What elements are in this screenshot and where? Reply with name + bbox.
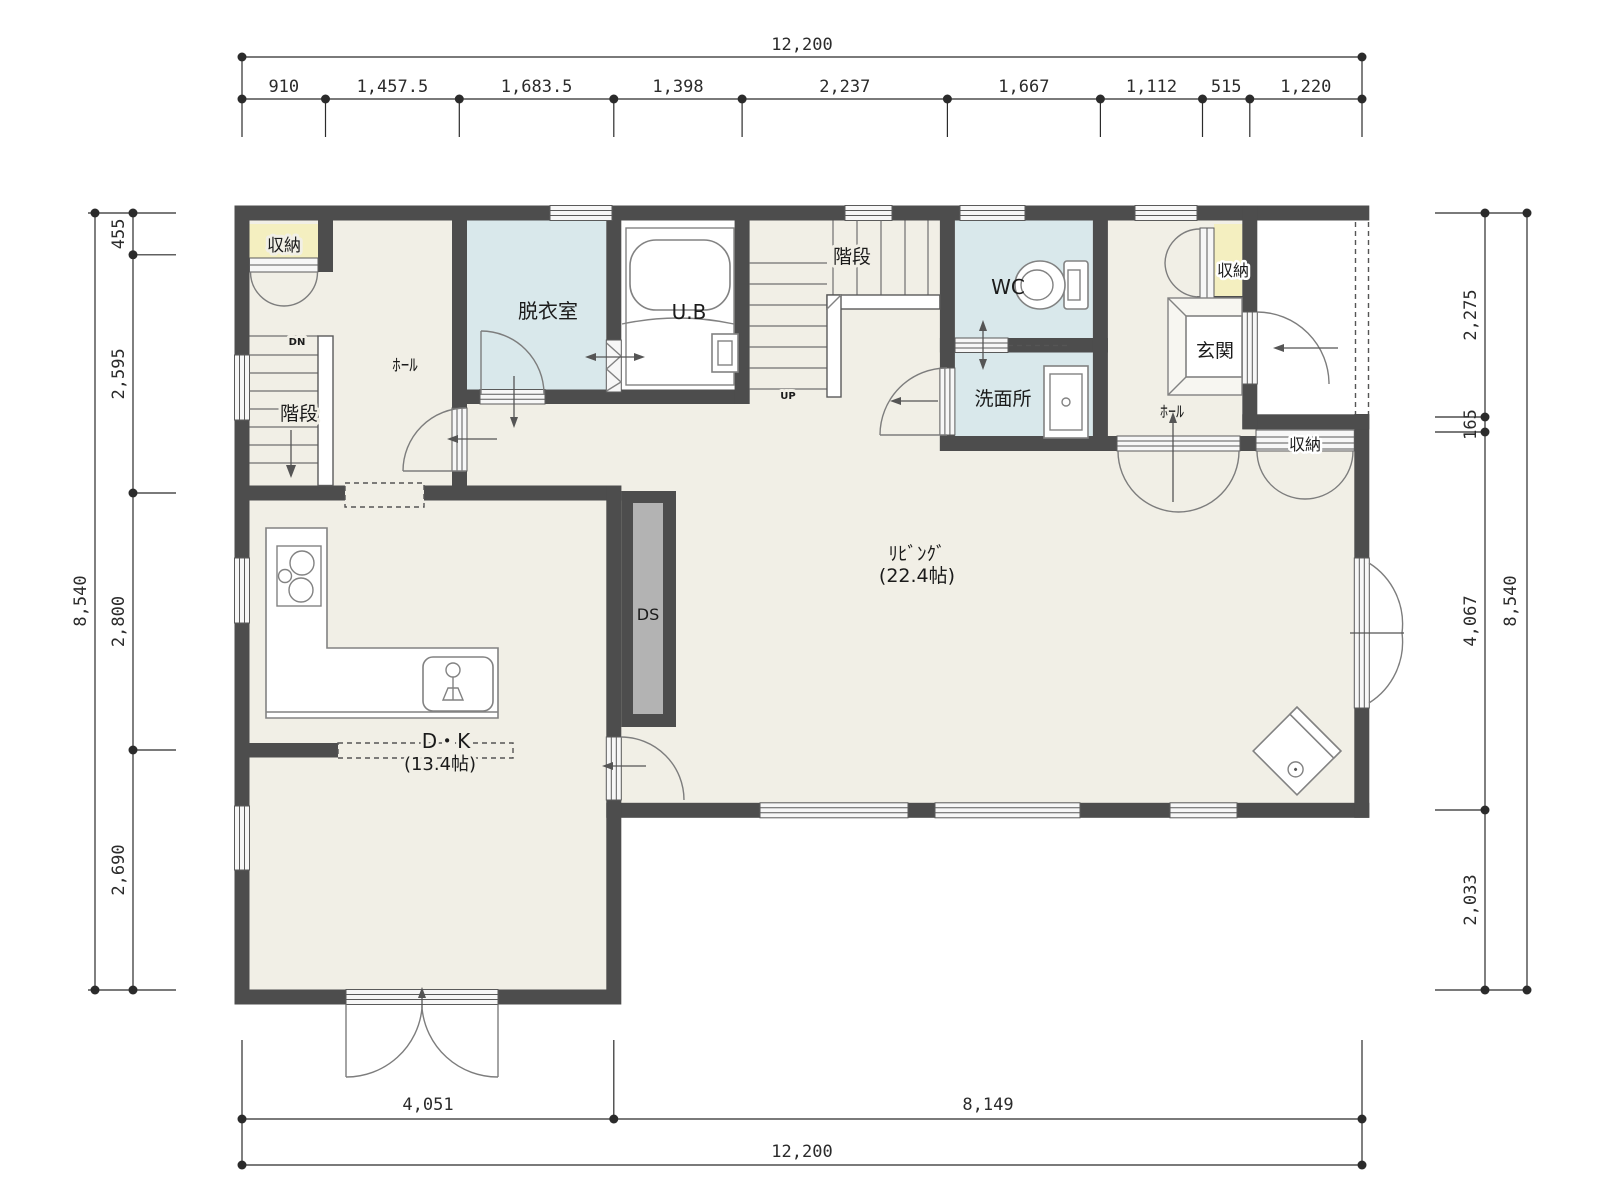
dimension-right: 8,540 2,275 165 4,067 2,033 <box>1435 209 1532 995</box>
dim-left-seg: 2,690 <box>109 844 129 895</box>
door-french-living <box>1350 558 1404 708</box>
window-left-stairs <box>235 355 250 420</box>
label-dressing: 脱衣室 <box>518 299 578 323</box>
dim-top-seg: 1,457.5 <box>357 77 429 97</box>
dim-top-seg: 1,398 <box>652 77 703 97</box>
label-dk: D・K <box>422 729 471 753</box>
window-south-1 <box>760 803 908 818</box>
toilet <box>1015 261 1088 309</box>
dim-top-seg: 515 <box>1211 77 1242 97</box>
label-hall-left: ﾎｰﾙ <box>392 356 418 376</box>
wall-porch-south <box>1242 414 1369 429</box>
label-living-size: (22.4帖) <box>879 565 955 587</box>
label-closet-top-left: 収納 <box>267 236 301 256</box>
dim-top-seg: 1,220 <box>1280 77 1331 97</box>
dim-top-seg: 1,683.5 <box>501 77 573 97</box>
entrance-porch <box>1242 206 1369 430</box>
door-unit-bath-folding <box>606 340 621 392</box>
wall-stub-closet-living <box>1240 436 1256 451</box>
dimension-bottom: 4,051 8,149 12,200 <box>238 1040 1367 1170</box>
dim-left-seg: 2,595 <box>109 348 129 399</box>
label-wc: WC <box>991 275 1025 299</box>
stairs-center-rail-v <box>827 295 841 397</box>
label-washroom: 洗面所 <box>974 388 1031 410</box>
floor-plan-page: 収納 ﾎｰﾙ 階段 DN 脱衣室 U.B 階段 UP WC 洗面所 収納 玄関 … <box>0 0 1600 1200</box>
window-top-wc <box>960 206 1025 221</box>
label-ds: DS <box>637 605 659 624</box>
dimension-top: 12,200 910 1,457.5 1,683.5 1,398 2,237 1… <box>238 35 1367 137</box>
dim-left-total: 8,540 <box>71 575 91 626</box>
label-entrance: 玄関 <box>1196 340 1234 362</box>
vanity-sink <box>1044 366 1088 438</box>
label-unit-bath: U.B <box>672 300 707 324</box>
window-left-kitchen <box>235 558 250 623</box>
dim-bottom-seg: 4,051 <box>402 1095 453 1115</box>
dim-left-seg: 2,800 <box>109 596 129 647</box>
dim-top-seg: 1,667 <box>998 77 1049 97</box>
dim-right-seg: 165 <box>1461 409 1481 440</box>
wall-hall-dk <box>235 486 622 501</box>
window-south-3 <box>1170 803 1237 818</box>
dim-top-seg: 2,237 <box>819 77 870 97</box>
window-top-stairs <box>845 206 892 221</box>
wall-washroom-east <box>1093 221 1108 452</box>
wall-hall-living <box>940 436 1117 451</box>
dim-bottom-total: 12,200 <box>771 1142 832 1162</box>
label-living: ﾘﾋﾞﾝｸﾞ <box>888 543 945 565</box>
dim-top-total: 12,200 <box>771 35 832 55</box>
stairs-center-rail-h <box>827 295 940 309</box>
label-stairs-left-dn: DN <box>289 337 306 348</box>
dim-top-seg: 1,112 <box>1126 77 1177 97</box>
label-dk-size: (13.4帖) <box>404 754 476 775</box>
stairs-left-rail <box>318 336 333 486</box>
window-top-dressing <box>550 206 612 221</box>
window-south-2 <box>935 803 1080 818</box>
dim-right-seg: 2,033 <box>1461 874 1481 925</box>
label-stairs-center-up: UP <box>780 391 795 402</box>
label-closet-entry: 収納 <box>1217 261 1249 280</box>
floor-plan-drawing: 収納 ﾎｰﾙ 階段 DN 脱衣室 U.B 階段 UP WC 洗面所 収納 玄関 … <box>0 0 1600 1200</box>
dim-right-total: 8,540 <box>1501 575 1521 626</box>
label-hall-right: ﾎｰﾙ <box>1160 402 1184 421</box>
dimension-left: 8,540 455 2,595 2,800 2,690 <box>71 209 176 995</box>
window-left-dining <box>235 806 250 870</box>
dim-bottom-seg: 8,149 <box>962 1095 1013 1115</box>
wall-ub-east <box>735 221 750 405</box>
dim-left-seg: 455 <box>109 219 129 250</box>
dim-right-seg: 4,067 <box>1461 595 1481 646</box>
wall-closet-tl-east <box>318 221 333 273</box>
window-top-entry <box>1135 206 1197 221</box>
dim-top-seg: 910 <box>268 77 299 97</box>
label-stairs-center: 階段 <box>833 246 871 268</box>
wall-top <box>235 206 1370 221</box>
label-stairs-left: 階段 <box>280 403 318 425</box>
wall-dk-south-stub <box>235 743 339 758</box>
label-closet-living: 収納 <box>1289 435 1321 454</box>
dim-right-seg: 2,275 <box>1461 289 1481 340</box>
